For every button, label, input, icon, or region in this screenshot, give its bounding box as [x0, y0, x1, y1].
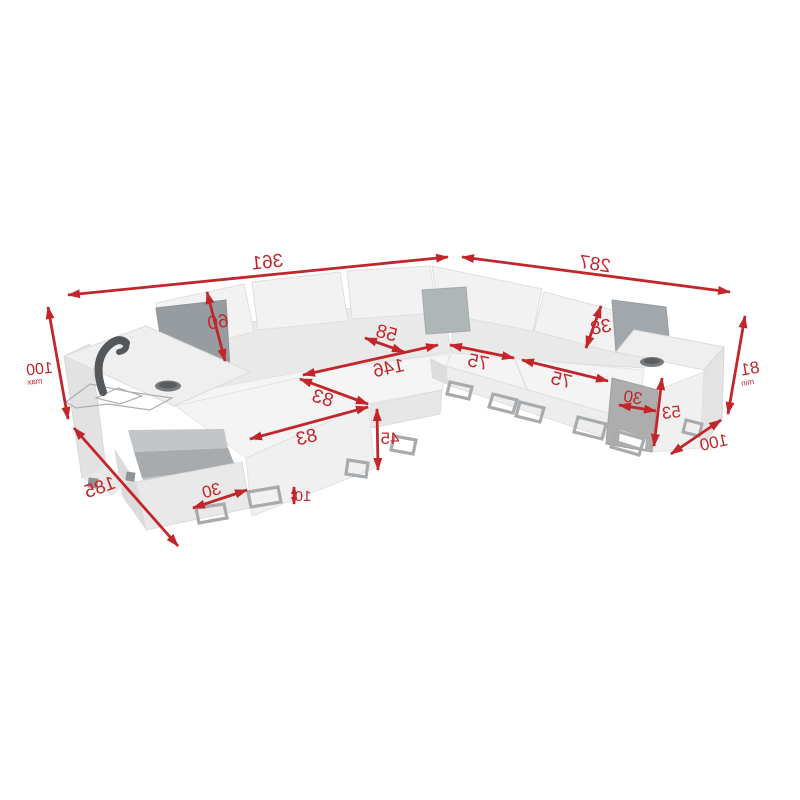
- dim-label-total-width-left: 361: [251, 250, 285, 274]
- dim-label-backrest-height: 60: [206, 311, 230, 335]
- dim-label-headrest-height: 38: [589, 315, 613, 339]
- dim-label-seat-width-a: 75: [466, 350, 491, 375]
- dim-label-seat-height: 45: [381, 429, 400, 448]
- dim-label-armrest-width: 30: [622, 387, 644, 409]
- dim-arrow-seat-height: [377, 409, 378, 470]
- dim-label-armrest-height: 53: [661, 402, 682, 423]
- sofa-dimension-diagram-page: 361 287 100 max 60 38 58 146 75 75 83 83…: [0, 0, 800, 800]
- dim-label-min-height: 81: [739, 358, 761, 380]
- dim-label-leg-height: 10: [295, 488, 312, 505]
- pillow-corner: [422, 287, 470, 334]
- storage-back-wall: [128, 429, 228, 452]
- sofa-dimension-diagram: 361 287 100 max 60 38 58 146 75 75 83 83…: [0, 0, 800, 800]
- dim-label-max-height-suffix: max: [27, 376, 43, 387]
- dim-label-min-height-suffix: min: [740, 377, 754, 388]
- leg-nub: [125, 471, 135, 481]
- headrest: [252, 272, 348, 330]
- cup-holder-left-inner: [159, 382, 177, 389]
- cup-holder-right-inner: [644, 358, 660, 364]
